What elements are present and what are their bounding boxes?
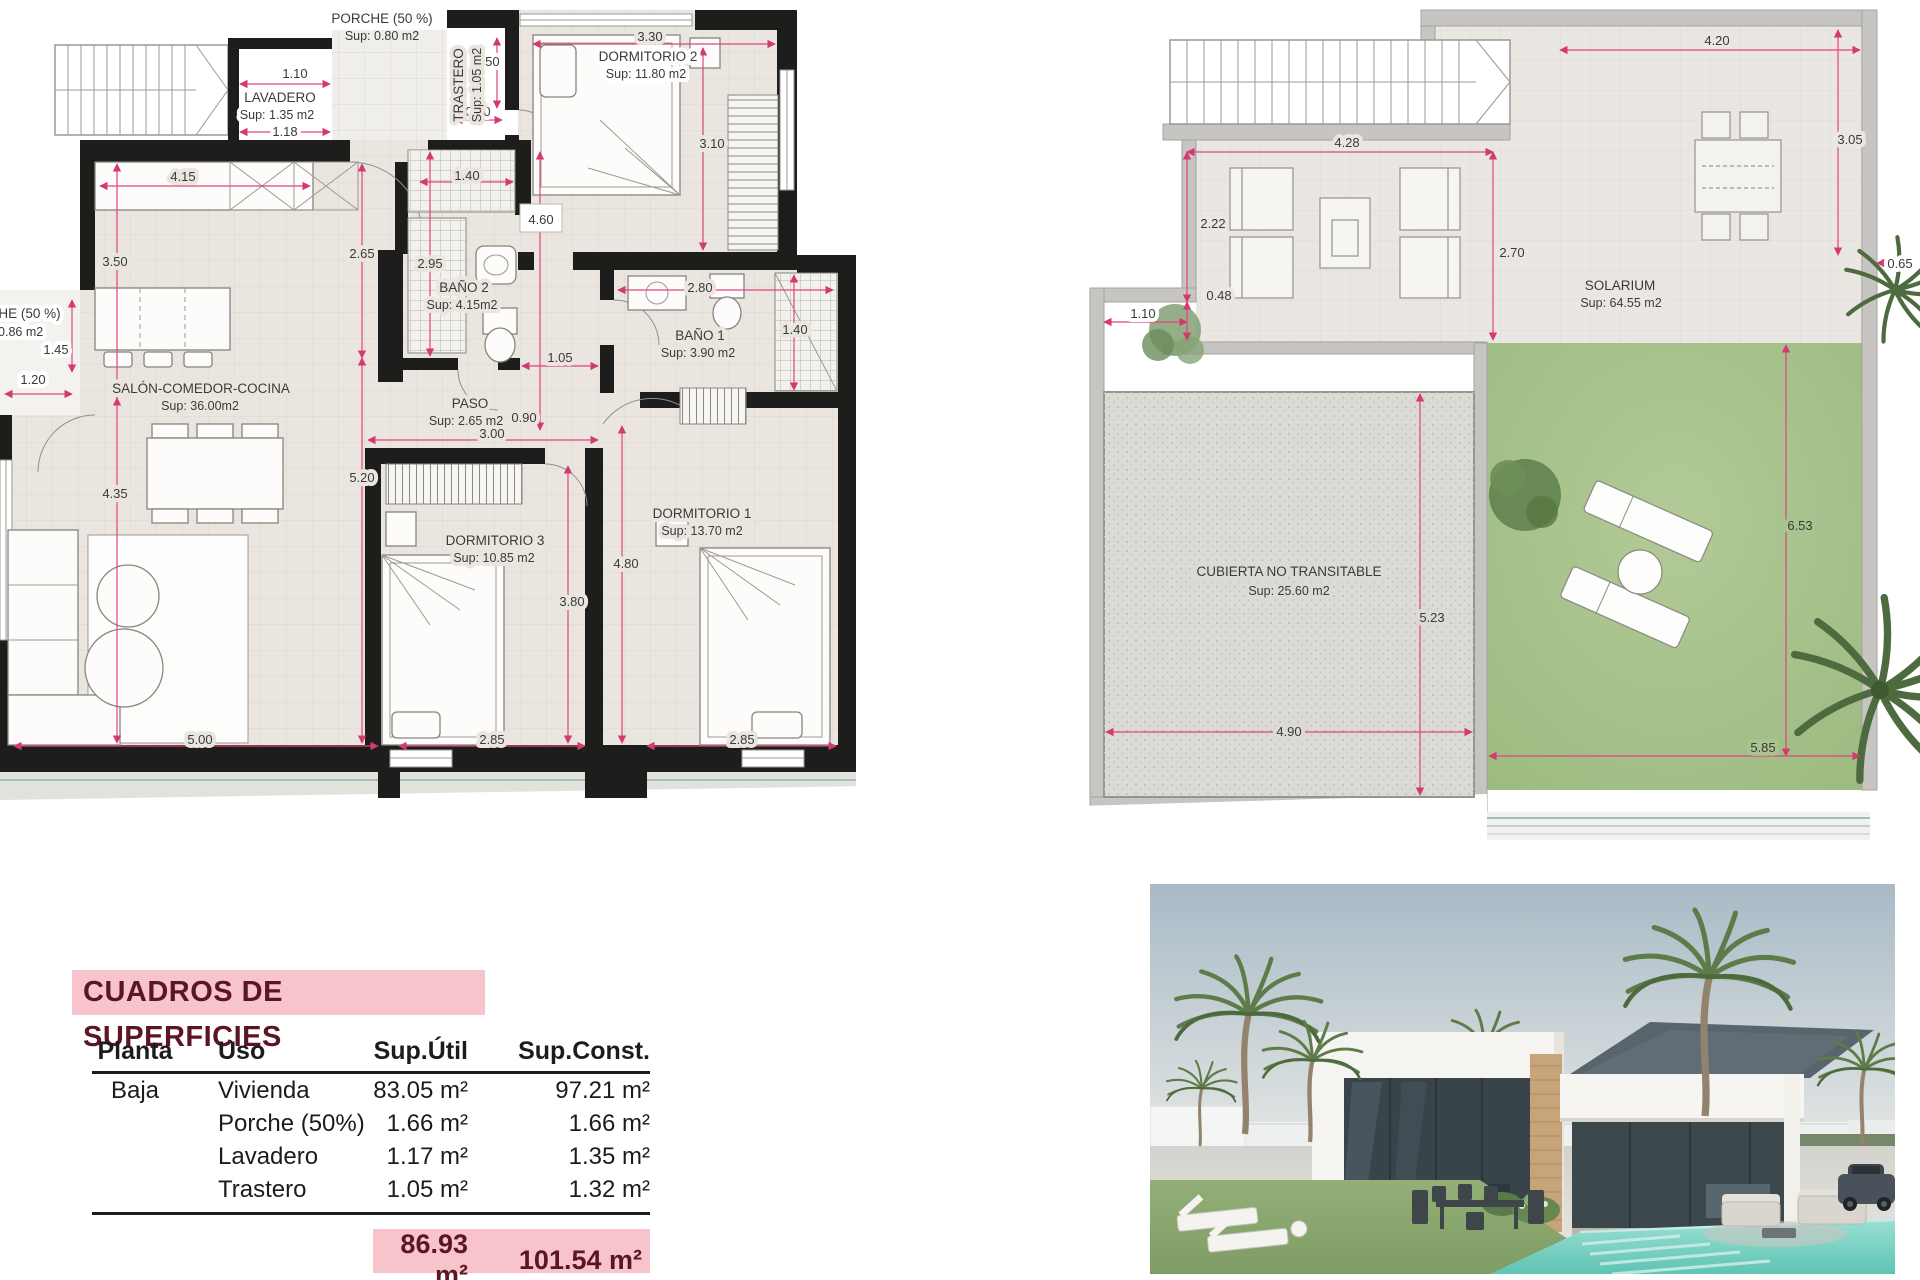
- deck-edge: [1487, 812, 1870, 840]
- dim-label: 3.50: [102, 254, 127, 269]
- dim-label: 2.22: [1200, 216, 1225, 231]
- dim-label: 1.05: [547, 350, 572, 365]
- room-sup: Sup: 64.55 m2: [1580, 296, 1661, 310]
- dim-label: 4.20: [1704, 33, 1729, 48]
- dim-label: 0.48: [1206, 288, 1231, 303]
- dim-label: 3.80: [559, 594, 584, 609]
- dim-label: 3.30: [637, 29, 662, 44]
- dim-label: 3.10: [699, 136, 724, 151]
- header-sup-util: Sup.Útil: [368, 1037, 468, 1066]
- total-const: 101.54 m²: [468, 1245, 650, 1276]
- table-body: Baja Vivienda 83.05 m² 97.21 m² Porche (…: [72, 1074, 650, 1206]
- room-sup: Sup: 0.86 m2: [0, 325, 43, 339]
- room-sup: Sup: 1.05 m2: [470, 48, 484, 122]
- floor-plan-roof: 4.20 4.28 2.22 2.70 0.48 1.10 3.05 0.65 …: [1080, 0, 1920, 845]
- cell-const: 1.32 m²: [468, 1176, 650, 1204]
- cell-util: 1.17 m²: [368, 1143, 468, 1171]
- dim-label: 4.60: [528, 212, 553, 227]
- room-label: LAVADERO: [244, 90, 316, 105]
- cell-uso: Vivienda: [198, 1077, 368, 1105]
- cell-uso: Trastero: [198, 1176, 368, 1204]
- cell-util: 1.66 m²: [368, 1110, 468, 1138]
- room-label: PORCHE (50 %): [0, 306, 61, 321]
- room-label: PASO: [452, 396, 489, 411]
- room-sup: Sup: 25.60 m2: [1248, 584, 1329, 598]
- room-sup: Sup: 10.85 m2: [453, 551, 534, 565]
- surface-table: CUADROS DE SUPERFICIES Planta Uso Sup.Út…: [72, 970, 650, 1273]
- dim-label: 4.80: [613, 556, 638, 571]
- dim-label: 1.40: [782, 322, 807, 337]
- room-sup: Sup: 13.70 m2: [661, 524, 742, 538]
- dim-label: 2.70: [1499, 245, 1524, 260]
- room-label: BAÑO 2: [439, 280, 489, 295]
- room-label: CUBIERTA NO TRANSITABLE: [1196, 564, 1381, 579]
- cell-uso: Porche (50%): [198, 1110, 368, 1138]
- table-header-row: Planta Uso Sup.Útil Sup.Const.: [72, 1036, 650, 1066]
- header-planta: Planta: [72, 1037, 198, 1066]
- cell-const: 1.66 m²: [468, 1110, 650, 1138]
- dim-label: 5.00: [187, 732, 212, 747]
- dim-label: 5.20: [349, 470, 374, 485]
- dim-label: 3.00: [479, 426, 504, 441]
- dim-label: 3.05: [1837, 132, 1862, 147]
- palm-trunk: [1871, 681, 1889, 699]
- room-sup: Sup: 36.00m2: [161, 399, 239, 413]
- cell-planta: Baja: [72, 1077, 198, 1105]
- room-sup: Sup: 2.65 m2: [429, 414, 503, 428]
- dim-label: 2.95: [417, 256, 442, 271]
- terrace-edge: [0, 772, 870, 812]
- villa-render: [1150, 884, 1895, 1274]
- room-label: DORMITORIO 1: [653, 506, 752, 521]
- dim-label: 4.90: [1276, 724, 1301, 739]
- dim-label: 1.45: [43, 342, 68, 357]
- cell-const: 97.21 m²: [468, 1077, 650, 1105]
- dim-label: 2.85: [479, 732, 504, 747]
- table-title: CUADROS DE SUPERFICIES: [72, 970, 485, 1015]
- room-sup: Sup: 4.15m2: [427, 298, 498, 312]
- room-sup: Sup: 0.80 m2: [345, 29, 419, 43]
- cell-const: 1.35 m²: [468, 1143, 650, 1171]
- footer-divider: [92, 1212, 650, 1215]
- dim-label: 1.10: [1130, 306, 1155, 321]
- cell-uso: Lavadero: [198, 1143, 368, 1171]
- exterior-stairs: [55, 45, 228, 135]
- room-sup: Sup: 11.80 m2: [606, 67, 686, 81]
- table-row: Trastero 1.05 m² 1.32 m²: [72, 1173, 650, 1206]
- room-sup: Sup: 1.35 m2: [240, 108, 314, 122]
- floor-plan-ground: 1.10 1.18 0.80 1.50 3.30 3.10 4.15 3.50 …: [0, 0, 870, 812]
- dim-label: 2.85: [729, 732, 754, 747]
- table-row: Baja Vivienda 83.05 m² 97.21 m²: [72, 1074, 650, 1107]
- cell-util: 83.05 m²: [368, 1077, 468, 1105]
- dim-label: 0.65: [1887, 256, 1912, 271]
- room-label: DORMITORIO 2: [599, 49, 698, 64]
- room-label: DORMITORIO 3: [446, 533, 545, 548]
- room-label: SALÓN-COMEDOR-COCINA: [112, 381, 290, 396]
- room-label: PORCHE (50 %): [331, 11, 432, 26]
- dim-label: 2.65: [349, 246, 374, 261]
- dim-label: 1.10: [282, 66, 307, 81]
- room-label: TRASTERO: [451, 48, 466, 122]
- total-util: 86.93 m²: [373, 1229, 468, 1280]
- dim-label: 4.35: [102, 486, 127, 501]
- table-row: Porche (50%) 1.66 m² 1.66 m²: [72, 1107, 650, 1140]
- room-label: BAÑO 1: [675, 328, 725, 343]
- dim-label: 1.40: [454, 168, 479, 183]
- dim-label: 5.85: [1750, 740, 1775, 755]
- header-sup-const: Sup.Const.: [468, 1037, 650, 1066]
- dim-label: 1.18: [272, 124, 297, 139]
- dim-label: 4.15: [170, 169, 195, 184]
- dim-label: 6.53: [1787, 518, 1812, 533]
- room-label: SOLARIUM: [1585, 278, 1656, 293]
- totals-row: 86.93 m² 101.54 m²: [373, 1229, 650, 1273]
- dim-label: 4.28: [1334, 135, 1359, 150]
- dim-label: 0.90: [511, 410, 536, 425]
- brochure-page: 1.10 1.18 0.80 1.50 3.30 3.10 4.15 3.50 …: [0, 0, 1920, 1280]
- table-row: Lavadero 1.17 m² 1.35 m²: [72, 1140, 650, 1173]
- dim-label: 1.20: [20, 372, 45, 387]
- dim-label: 2.80: [687, 280, 712, 295]
- roof-stairs: [1170, 40, 1510, 124]
- dim-label: 5.23: [1419, 610, 1444, 625]
- cell-util: 1.05 m²: [368, 1176, 468, 1204]
- header-uso: Uso: [198, 1037, 368, 1066]
- room-sup: Sup: 3.90 m2: [661, 346, 735, 360]
